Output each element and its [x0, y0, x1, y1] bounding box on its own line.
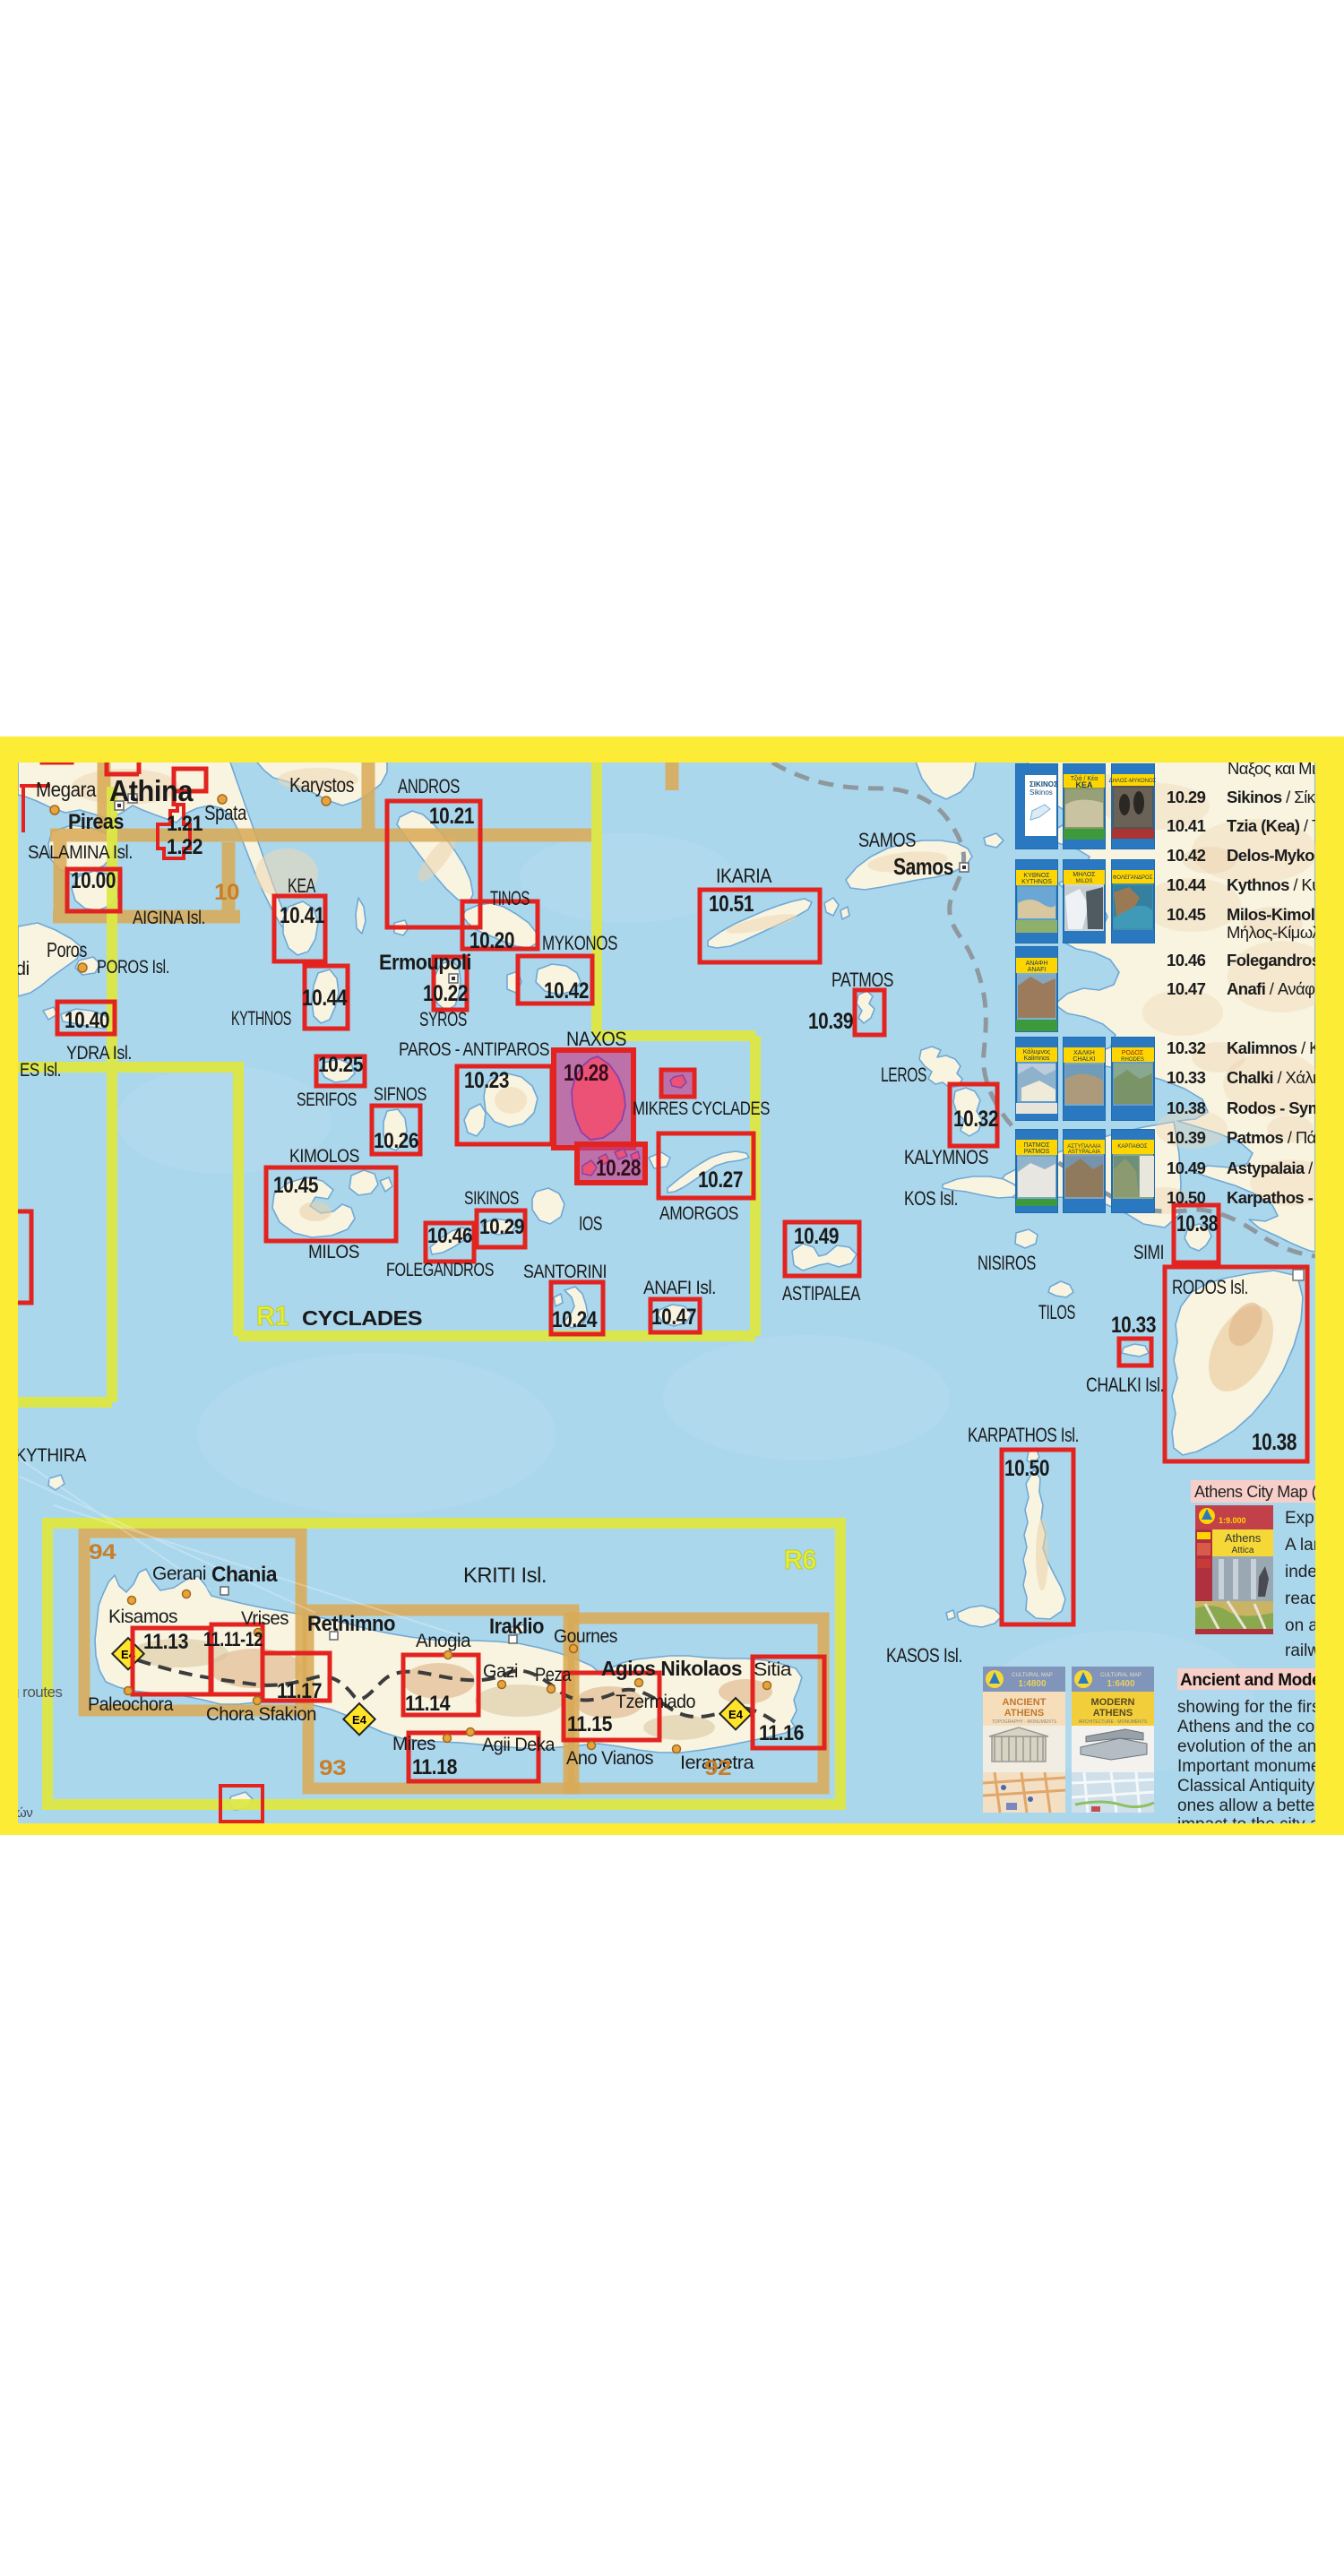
svg-text:ΦΟΛΕΓΑΝΔΡΟΣ: ΦΟΛΕΓΑΝΔΡΟΣ	[1113, 875, 1153, 881]
svg-text:KIMOLOS: KIMOLOS	[289, 1146, 359, 1167]
svg-text:KEA: KEA	[288, 874, 316, 897]
svg-text:ΣΙΚΙΝΟΣ: ΣΙΚΙΝΟΣ	[1030, 780, 1058, 788]
svg-text:SAMOS: SAMOS	[858, 829, 916, 851]
svg-text:KARPATHOS Isl.: KARPATHOS Isl.	[968, 1424, 1079, 1446]
svg-text:ANAFI: ANAFI	[1028, 967, 1047, 973]
svg-text:Pireas: Pireas	[68, 810, 124, 834]
svg-text:10.45: 10.45	[273, 1173, 318, 1198]
svg-text:YDRA Isl.: YDRA Isl.	[66, 1043, 132, 1064]
svg-text:10.39: 10.39	[808, 1009, 853, 1034]
svg-text:94: 94	[89, 1540, 116, 1564]
svg-text:Chania: Chania	[211, 1563, 278, 1587]
svg-text:CHALKI Isl.: CHALKI Isl.	[1086, 1374, 1164, 1396]
svg-text:10.49: 10.49	[1167, 1159, 1206, 1177]
svg-text:ASTYPALAIA: ASTYPALAIA	[1068, 1150, 1100, 1155]
svg-text:evolution of the ancie: evolution of the ancie	[1177, 1737, 1339, 1756]
svg-text:PATMOS: PATMOS	[831, 969, 893, 991]
svg-text:Athens: Athens	[1225, 1531, 1262, 1545]
svg-text:10: 10	[214, 880, 239, 905]
svg-text:10.44: 10.44	[302, 986, 347, 1011]
svg-text:11.11-12: 11.11-12	[203, 1628, 263, 1650]
svg-text:Tzermiado: Tzermiado	[616, 1692, 695, 1712]
svg-text:Athens City Map (1:: Athens City Map (1:	[1194, 1483, 1329, 1501]
svg-text:10.46: 10.46	[1167, 951, 1206, 969]
svg-text:AMORGOS: AMORGOS	[659, 1203, 738, 1224]
svg-text:ΠΑΤΜΟΣ: ΠΑΤΜΟΣ	[1023, 1142, 1050, 1149]
svg-text:10.32: 10.32	[953, 1107, 998, 1132]
svg-text:10.46: 10.46	[427, 1224, 472, 1248]
svg-text:Gournes: Gournes	[554, 1626, 617, 1647]
svg-text:PAROS - ANTIPAROS: PAROS - ANTIPAROS	[399, 1039, 549, 1060]
svg-text:11.14: 11.14	[405, 1692, 451, 1716]
svg-text:CYCLADES: CYCLADES	[302, 1306, 422, 1330]
svg-text:ANAFI Isl.: ANAFI Isl.	[643, 1278, 716, 1298]
svg-text:Paleochora: Paleochora	[88, 1694, 174, 1715]
svg-text:10.28: 10.28	[596, 1156, 641, 1181]
svg-text:Kisamos: Kisamos	[108, 1607, 177, 1627]
svg-text:10.39: 10.39	[1167, 1128, 1206, 1147]
svg-text:MYKONOS: MYKONOS	[542, 932, 617, 954]
svg-text:10.26: 10.26	[374, 1129, 418, 1153]
svg-text:RODOS Isl.: RODOS Isl.	[1172, 1276, 1248, 1298]
svg-text:Spata: Spata	[204, 801, 247, 824]
svg-text:Poros: Poros	[47, 938, 87, 961]
svg-text:SIKINOS: SIKINOS	[464, 1188, 519, 1209]
svg-text:1:6400: 1:6400	[1107, 1679, 1135, 1689]
svg-text:TILOS: TILOS	[1038, 1301, 1075, 1323]
svg-text:10.20: 10.20	[470, 928, 514, 953]
svg-text:10.41: 10.41	[1167, 816, 1206, 835]
svg-text:POROS Isl.: POROS Isl.	[97, 957, 169, 978]
svg-text:Iraklio: Iraklio	[489, 1615, 544, 1639]
svg-text:SIMI: SIMI	[1133, 1241, 1164, 1263]
svg-text:KRITI Isl.: KRITI Isl.	[463, 1564, 547, 1588]
svg-text:10.00: 10.00	[71, 868, 116, 893]
svg-text:Ancient and Modern: Ancient and Modern	[1180, 1671, 1337, 1690]
svg-text:10.38: 10.38	[1252, 1428, 1297, 1455]
svg-text:Rethimno: Rethimno	[307, 1612, 395, 1636]
svg-text:Megara: Megara	[36, 778, 97, 801]
svg-text:ών: ών	[16, 1805, 32, 1821]
svg-text:NAXOS: NAXOS	[566, 1028, 626, 1050]
svg-text:SANTORINI: SANTORINI	[523, 1262, 607, 1282]
svg-text:MIKRES CYCLADES: MIKRES CYCLADES	[633, 1098, 770, 1119]
svg-text:LEROS: LEROS	[881, 1064, 926, 1086]
svg-text:92: 92	[704, 1756, 731, 1780]
svg-text:10.38: 10.38	[1176, 1211, 1218, 1236]
svg-text:Athina: Athina	[109, 774, 194, 807]
svg-text:ATHENS: ATHENS	[1004, 1708, 1044, 1719]
svg-text:IOS: IOS	[579, 1212, 602, 1235]
svg-text:SIFNOS: SIFNOS	[374, 1084, 426, 1105]
svg-text:ASTIPALEA: ASTIPALEA	[782, 1282, 861, 1305]
svg-text:10.22: 10.22	[423, 981, 468, 1006]
svg-text:Ermoupoli: Ermoupoli	[379, 951, 471, 975]
svg-text:IKYTHIRA: IKYTHIRA	[11, 1445, 86, 1466]
svg-text:Kalimnos: Kalimnos	[1024, 1055, 1050, 1062]
svg-text:10.27: 10.27	[698, 1167, 743, 1193]
svg-text:RHODES: RHODES	[1121, 1057, 1144, 1063]
svg-text:10.42: 10.42	[544, 978, 589, 1004]
svg-text:10.21: 10.21	[429, 804, 474, 829]
svg-text:10.45: 10.45	[1167, 905, 1206, 924]
svg-text:MILOS: MILOS	[1076, 879, 1093, 884]
svg-text:R1: R1	[256, 1300, 289, 1331]
svg-text:SALAMINA Isl.: SALAMINA Isl.	[28, 842, 133, 863]
svg-text:10.44: 10.44	[1167, 875, 1207, 894]
svg-text:CULTURAL MAP: CULTURAL MAP	[1100, 1673, 1142, 1678]
svg-text:Vrises: Vrises	[241, 1608, 289, 1629]
svg-text:10.23: 10.23	[464, 1068, 509, 1093]
svg-text:Gazi: Gazi	[483, 1661, 518, 1682]
svg-text:1.21: 1.21	[167, 812, 202, 836]
svg-text:ARCHITECTURE - MONUMENTS: ARCHITECTURE - MONUMENTS	[1079, 1719, 1148, 1725]
svg-text:IKARIA: IKARIA	[716, 865, 772, 887]
svg-text:Κάλυμνος: Κάλυμνος	[1023, 1048, 1051, 1055]
svg-text:10.32: 10.32	[1167, 1038, 1206, 1057]
svg-text:10.29: 10.29	[1167, 788, 1206, 806]
svg-text:ΚΑΡΠΑΘΟΣ: ΚΑΡΠΑΘΟΣ	[1117, 1144, 1148, 1150]
svg-text:1:4800: 1:4800	[1018, 1679, 1047, 1689]
svg-text:11.13: 11.13	[143, 1630, 188, 1654]
svg-text:10.49: 10.49	[794, 1224, 839, 1249]
svg-text:ATHENS: ATHENS	[1093, 1708, 1133, 1719]
svg-text:ANCIENT: ANCIENT	[1003, 1697, 1047, 1708]
svg-text:1.22: 1.22	[167, 835, 202, 859]
svg-text:KALYMNOS: KALYMNOS	[904, 1146, 988, 1168]
svg-text:ANDROS: ANDROS	[398, 775, 460, 797]
svg-text:11.18: 11.18	[412, 1755, 457, 1779]
svg-text:10.47: 10.47	[1167, 979, 1206, 998]
svg-text:E4: E4	[352, 1713, 367, 1727]
svg-text:10.33: 10.33	[1111, 1313, 1156, 1338]
svg-text:ΑΝΑΦΗ: ΑΝΑΦΗ	[1026, 961, 1048, 967]
svg-text:93: 93	[319, 1756, 346, 1780]
svg-text:10.41: 10.41	[280, 903, 324, 928]
svg-text:ΜΗΛΟΣ: ΜΗΛΟΣ	[1073, 872, 1096, 878]
svg-text:10.29: 10.29	[479, 1215, 524, 1239]
svg-text:KYTHNOS: KYTHNOS	[231, 1007, 291, 1030]
svg-text:10.51: 10.51	[709, 892, 754, 917]
svg-text:Gerani: Gerani	[152, 1564, 206, 1584]
svg-text:10.33: 10.33	[1167, 1068, 1206, 1087]
svg-text:AIGINA Isl.: AIGINA Isl.	[133, 908, 205, 928]
svg-text:PATMOS: PATMOS	[1024, 1149, 1050, 1155]
svg-text:Sikinos: Sikinos	[1030, 788, 1053, 797]
svg-text:10.24: 10.24	[552, 1307, 597, 1332]
svg-text:CHALKI: CHALKI	[1073, 1056, 1095, 1063]
svg-text:Peza: Peza	[535, 1665, 572, 1685]
svg-text:KASOS Isl.: KASOS Isl.	[886, 1644, 962, 1667]
svg-text:Agii Deka: Agii Deka	[482, 1735, 556, 1755]
svg-text:Mires: Mires	[392, 1734, 435, 1754]
svg-text:10.42: 10.42	[1167, 846, 1206, 865]
svg-text:Anogia: Anogia	[416, 1631, 471, 1651]
svg-text:E4: E4	[728, 1708, 744, 1721]
svg-text:ΚΥΘΝΟΣ: ΚΥΘΝΟΣ	[1023, 873, 1050, 879]
svg-text:R6: R6	[784, 1544, 816, 1575]
svg-text:10.28: 10.28	[564, 1059, 608, 1086]
svg-text:11.16: 11.16	[759, 1721, 804, 1745]
svg-text:Attica: Attica	[1231, 1546, 1254, 1555]
svg-text:SYROS: SYROS	[419, 1008, 467, 1030]
svg-text:10.38: 10.38	[1167, 1098, 1206, 1117]
svg-text:Agios Nikolaos: Agios Nikolaos	[601, 1657, 742, 1680]
svg-text:TOPOGRAPHY - MONUMENTS: TOPOGRAPHY - MONUMENTS	[992, 1719, 1057, 1725]
svg-text:MODERN: MODERN	[1091, 1697, 1135, 1708]
svg-text:Ano Vianos: Ano Vianos	[566, 1748, 653, 1769]
svg-text:11.15: 11.15	[567, 1712, 612, 1736]
svg-text:g routes: g routes	[11, 1684, 62, 1701]
svg-text:10.40: 10.40	[65, 1008, 109, 1033]
svg-text:Sitia: Sitia	[754, 1659, 792, 1680]
svg-text:10.25: 10.25	[318, 1053, 363, 1077]
svg-text:1:9.000: 1:9.000	[1219, 1516, 1246, 1525]
svg-text:TINOS: TINOS	[490, 887, 530, 909]
svg-text:KYTHNOS: KYTHNOS	[1021, 879, 1052, 885]
svg-text:NISIROS: NISIROS	[978, 1252, 1036, 1274]
svg-text:Chora Sfakion: Chora Sfakion	[206, 1704, 316, 1725]
svg-text:Karystos: Karystos	[289, 773, 354, 797]
svg-text:ΧΑΛΚΗ: ΧΑΛΚΗ	[1073, 1050, 1095, 1056]
svg-text:10.50: 10.50	[1167, 1188, 1206, 1207]
svg-text:Important monument: Important monument	[1177, 1757, 1335, 1776]
svg-text:ES Isl.: ES Isl.	[20, 1060, 61, 1081]
svg-text:11.17: 11.17	[277, 1679, 322, 1703]
svg-text:CULTURAL MAP: CULTURAL MAP	[1012, 1673, 1053, 1678]
svg-text:ΚΕΑ: ΚΕΑ	[1075, 780, 1093, 789]
svg-text:KOS Isl.: KOS Isl.	[904, 1187, 958, 1210]
svg-text:showing for the first ti: showing for the first ti	[1177, 1698, 1339, 1717]
svg-text:Samos: Samos	[893, 853, 953, 880]
svg-text:10.50: 10.50	[1004, 1456, 1049, 1481]
svg-text:MILOS: MILOS	[308, 1242, 359, 1262]
svg-text:FOLEGANDROS: FOLEGANDROS	[386, 1260, 494, 1280]
svg-text:SERIFOS: SERIFOS	[297, 1090, 357, 1110]
svg-text:10.47: 10.47	[651, 1305, 696, 1330]
svg-text:ΡΟΔΟΣ: ΡΟΔΟΣ	[1122, 1050, 1144, 1056]
svg-text:ΔΗΛΟΣ-ΜΥΚΟΝΟΣ: ΔΗΛΟΣ-ΜΥΚΟΝΟΣ	[1109, 779, 1157, 784]
